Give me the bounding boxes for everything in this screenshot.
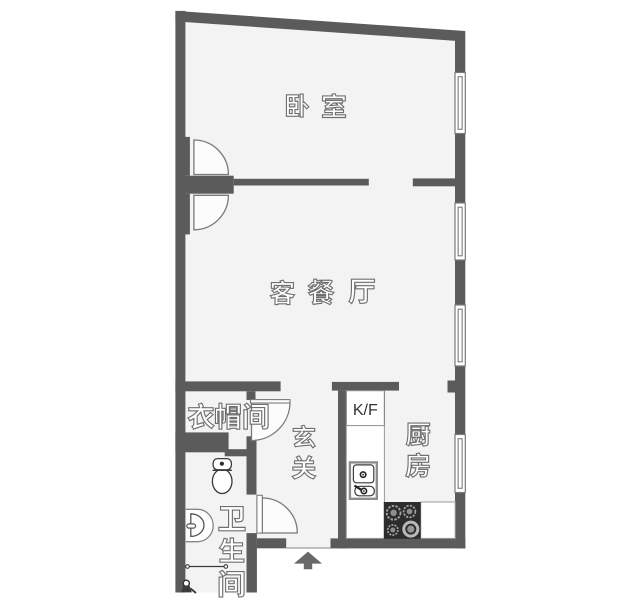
svg-text:K/F: K/F bbox=[353, 402, 378, 419]
